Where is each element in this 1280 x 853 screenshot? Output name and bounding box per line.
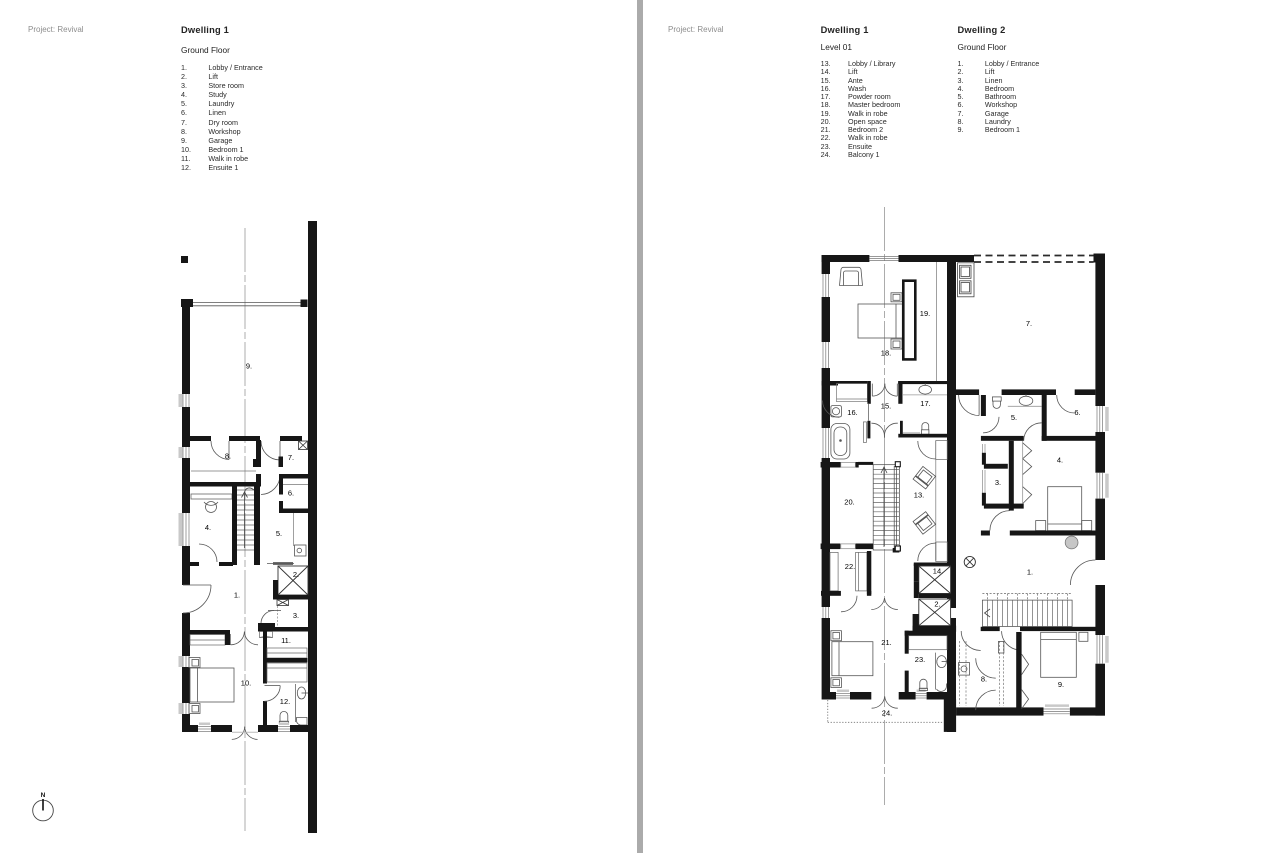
svg-text:20.: 20.: [844, 498, 854, 507]
svg-text:12.: 12.: [280, 697, 290, 706]
svg-text:22.: 22.: [845, 562, 855, 571]
svg-text:4.: 4.: [205, 523, 211, 532]
svg-text:9.: 9.: [246, 362, 252, 371]
svg-text:23.: 23.: [915, 655, 925, 664]
svg-text:17.: 17.: [920, 399, 930, 408]
svg-text:2.: 2.: [934, 600, 940, 609]
svg-text:7.: 7.: [1026, 319, 1032, 328]
svg-text:24.: 24.: [882, 709, 892, 718]
svg-text:N: N: [41, 792, 46, 799]
svg-text:10.: 10.: [241, 679, 251, 688]
svg-text:6.: 6.: [1074, 408, 1080, 417]
svg-text:2.: 2.: [293, 570, 299, 579]
svg-text:13.: 13.: [914, 491, 924, 500]
svg-text:1.: 1.: [1027, 568, 1033, 577]
svg-text:16.: 16.: [847, 408, 857, 417]
svg-text:5.: 5.: [1011, 413, 1017, 422]
svg-text:14.: 14.: [933, 567, 943, 576]
svg-text:7.: 7.: [288, 453, 294, 462]
svg-text:1.: 1.: [234, 591, 240, 600]
svg-text:3.: 3.: [995, 478, 1001, 487]
svg-text:6.: 6.: [288, 489, 294, 498]
svg-text:19.: 19.: [920, 309, 930, 318]
svg-text:15.: 15.: [881, 402, 891, 411]
svg-text:5.: 5.: [276, 529, 282, 538]
svg-text:18.: 18.: [881, 349, 891, 358]
svg-text:3.: 3.: [293, 611, 299, 620]
svg-text:8.: 8.: [225, 452, 231, 461]
svg-text:4.: 4.: [1057, 456, 1063, 465]
svg-text:11.: 11.: [281, 636, 291, 645]
svg-text:9.: 9.: [1058, 680, 1064, 689]
svg-text:21.: 21.: [881, 638, 891, 647]
